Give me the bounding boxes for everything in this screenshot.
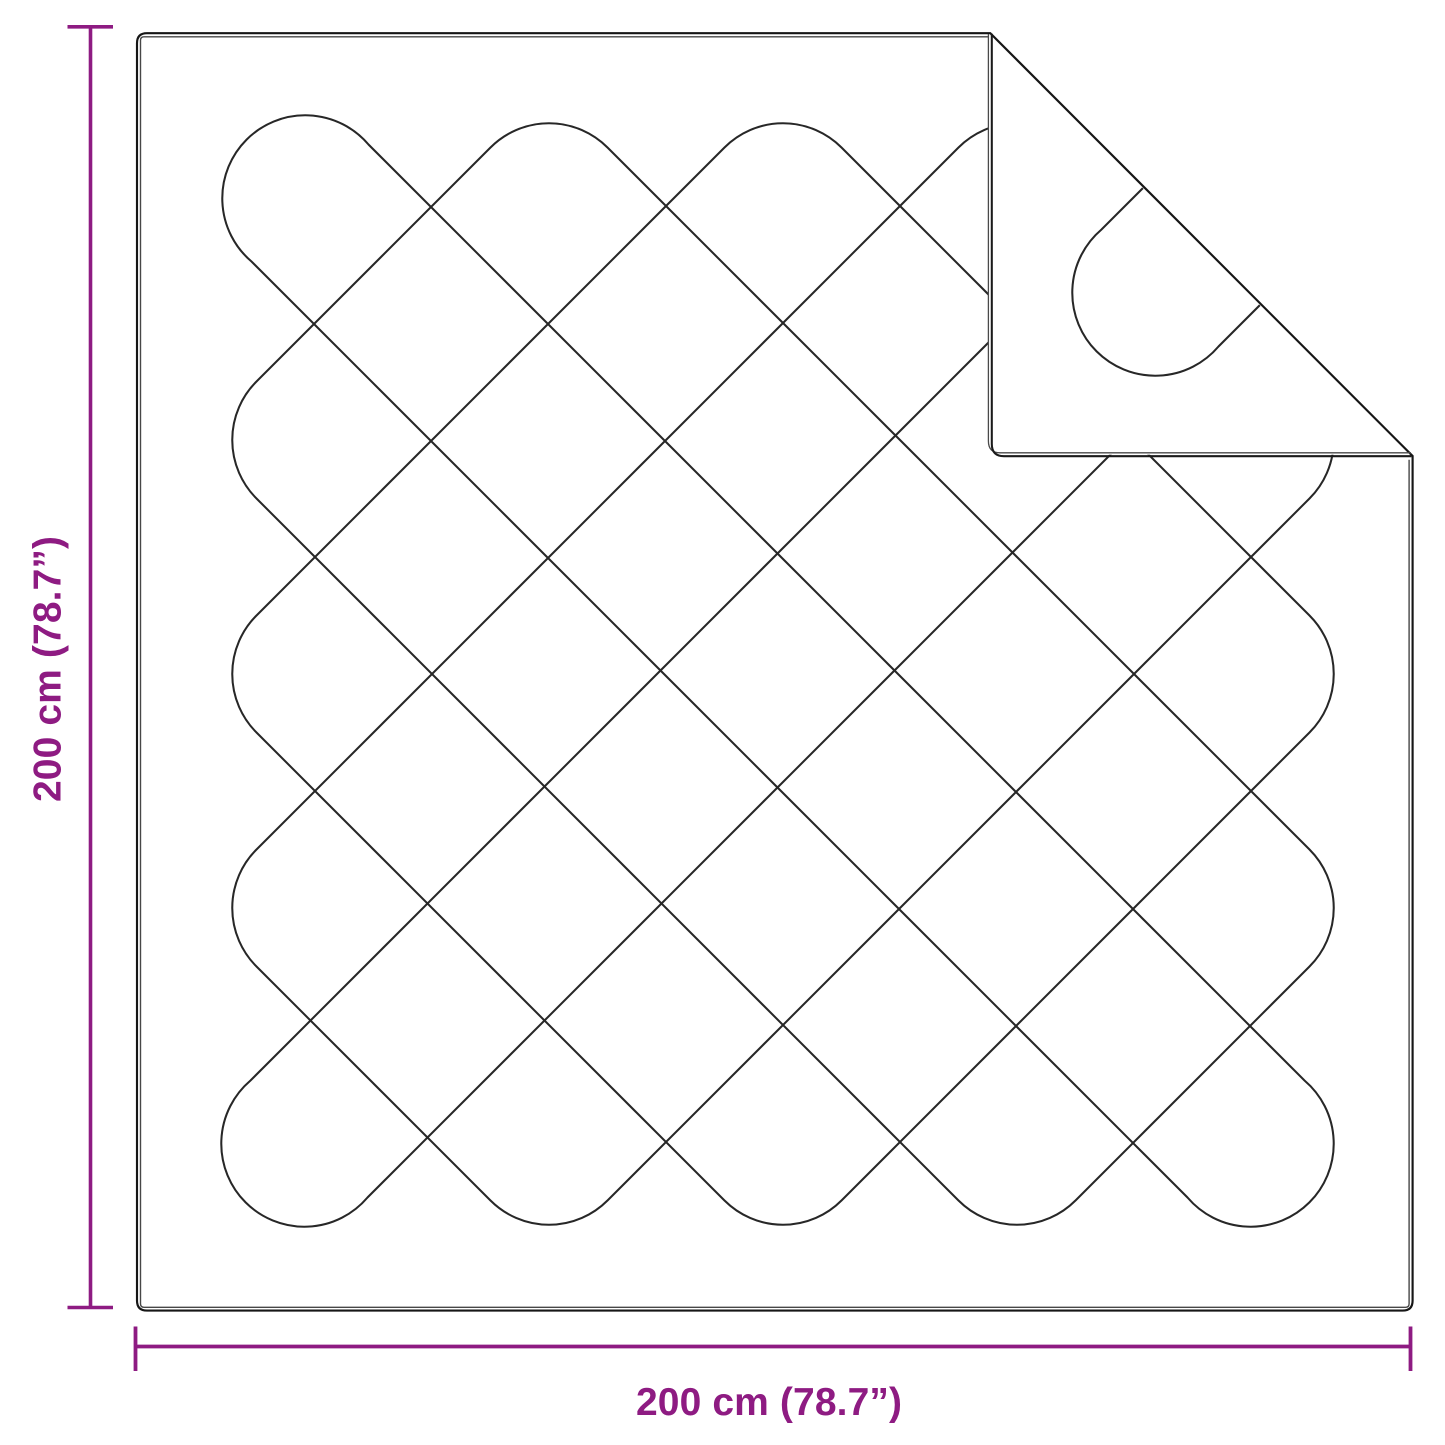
svg-text:200 cm (78.7”): 200 cm (78.7”) [27,536,70,802]
svg-text:200 cm (78.7”): 200 cm (78.7”) [636,1381,902,1424]
